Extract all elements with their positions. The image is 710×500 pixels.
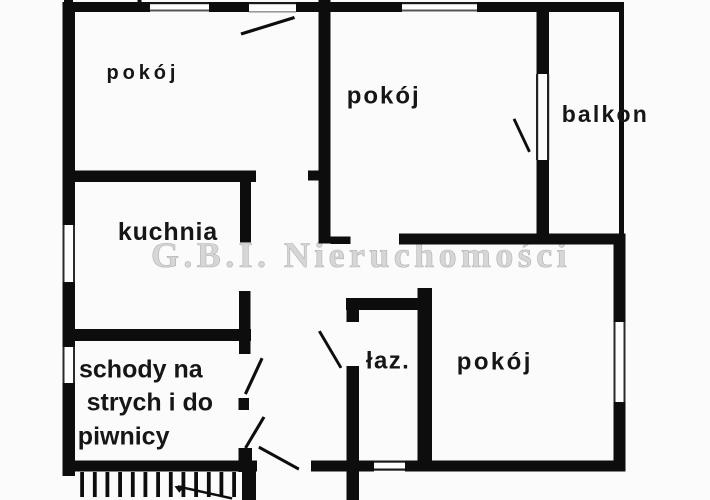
svg-text:pokój: pokój [457,349,533,376]
svg-text:łaz.: łaz. [366,347,410,374]
svg-text:pokój: pokój [347,83,421,110]
svg-text:balkon: balkon [562,101,649,127]
svg-text:schody na: schody na [79,356,204,384]
svg-text:strych i do: strych i do [87,388,213,416]
svg-text:pokój: pokój [107,62,180,84]
svg-text:kuchnia: kuchnia [118,218,218,246]
svg-text:piwnicy: piwnicy [78,423,170,451]
